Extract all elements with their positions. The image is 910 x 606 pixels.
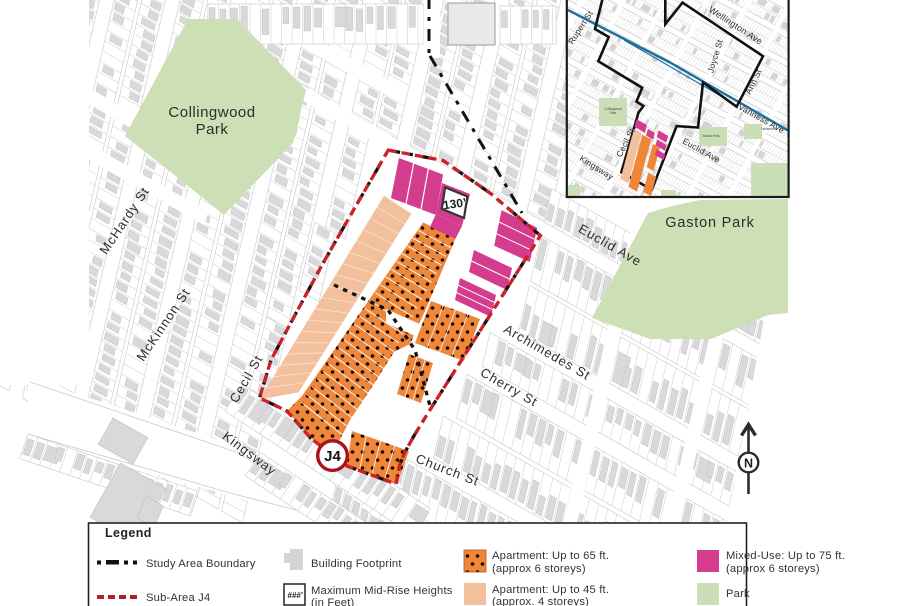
svg-text:N: N xyxy=(744,456,753,470)
svg-text:Maximum Mid-Rise Heights: Maximum Mid-Rise Heights xyxy=(311,585,453,597)
svg-text:Mixed-Use: Up to 75 ft.: Mixed-Use: Up to 75 ft. xyxy=(726,550,845,562)
svg-text:J4: J4 xyxy=(324,448,341,465)
svg-text:###’: ###’ xyxy=(288,591,304,600)
svg-text:Legend: Legend xyxy=(105,526,152,540)
svg-text:Gaston Park: Gaston Park xyxy=(665,215,754,231)
svg-text:Park: Park xyxy=(610,111,617,115)
svg-text:Building Footprint: Building Footprint xyxy=(311,558,402,570)
svg-text:Park: Park xyxy=(196,121,229,138)
svg-text:(in Feet): (in Feet) xyxy=(311,597,355,606)
svg-text:Gaston Park: Gaston Park xyxy=(702,134,720,138)
svg-text:(approx. 4 storeys): (approx. 4 storeys) xyxy=(492,596,589,606)
svg-text:Study Area Boundary: Study Area Boundary xyxy=(146,558,256,570)
svg-text:Sub-Area J4: Sub-Area J4 xyxy=(146,592,210,604)
svg-text:(approx 6 storeys): (approx 6 storeys) xyxy=(726,563,820,575)
svg-text:Apartment: Up to 45 ft.: Apartment: Up to 45 ft. xyxy=(492,584,609,596)
svg-text:Apartment: Up to 65 ft.: Apartment: Up to 65 ft. xyxy=(492,550,609,562)
svg-text:Collingwood: Collingwood xyxy=(168,104,255,121)
svg-text:Hallermore: Hallermore xyxy=(761,127,777,131)
svg-text:(approx 6 storeys): (approx 6 storeys) xyxy=(492,563,586,575)
svg-text:Park: Park xyxy=(726,588,750,600)
